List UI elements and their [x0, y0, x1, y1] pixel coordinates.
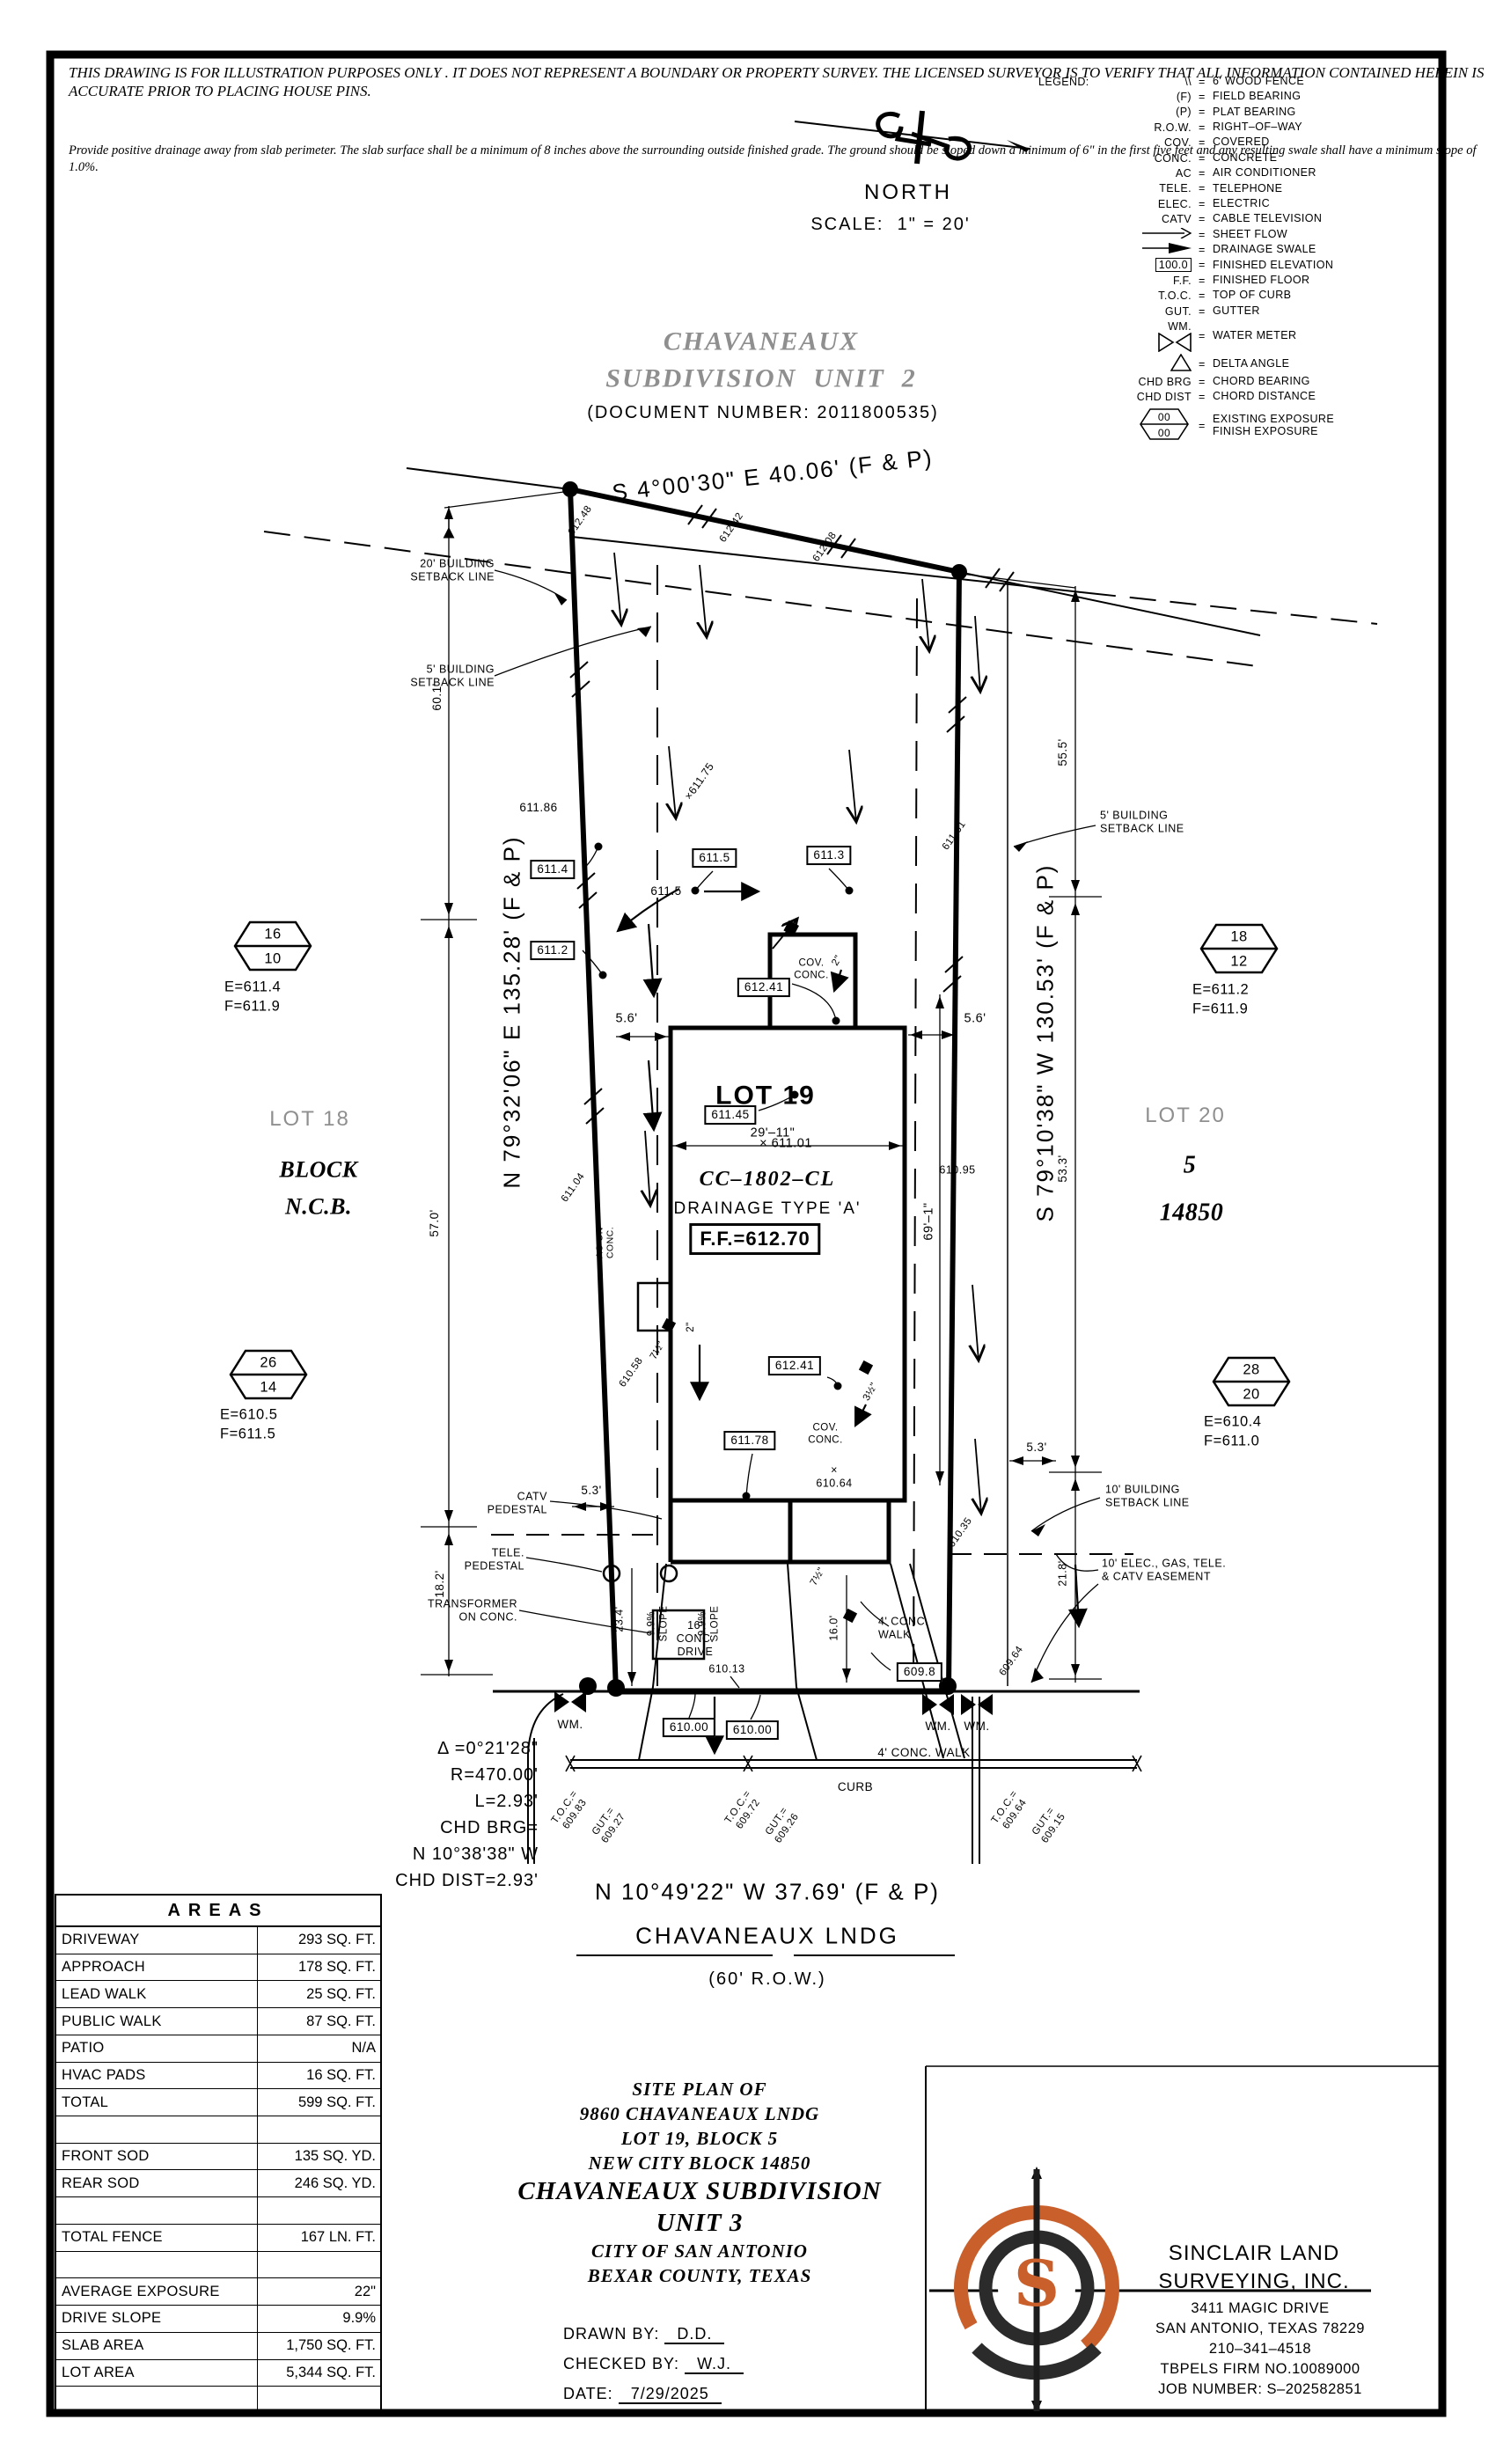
- hex-rt-finish: F=611.9: [1192, 1001, 1248, 1017]
- legend-row: WM.=WATER METER: [1107, 319, 1424, 354]
- elev-box-611-3: 611.3: [806, 846, 851, 865]
- street-name: CHAVANEAUX LNDG: [635, 1923, 899, 1950]
- legend-row: TELE.=TELEPHONE: [1107, 181, 1424, 196]
- dim-18-2: 18.2': [433, 1570, 447, 1597]
- table-row: REAR SOD246 SQ. YD.: [56, 2170, 380, 2197]
- setback-5-left-label: 5' BUILDING SETBACK LINE: [410, 663, 495, 689]
- elev-box-610-00-a: 610.00: [663, 1718, 715, 1737]
- table-row: DRIVEWAY293 SQ. FT.: [56, 1927, 380, 1954]
- svg-text:00: 00: [1158, 427, 1170, 439]
- legend-row: R.O.W.=RIGHT–OF–WAY: [1107, 120, 1424, 135]
- table-row: [56, 2252, 380, 2279]
- legend-row: =DRAINAGE SWALE: [1107, 242, 1424, 257]
- adjacent-subdivision-title2: SUBDIVISION UNIT 2: [605, 363, 916, 393]
- legend-row: CHD BRG=CHORD BEARING: [1107, 374, 1424, 389]
- legend-row: CONC.=CONCRETE: [1107, 150, 1424, 165]
- elev-box-611-45: 611.45: [704, 1105, 756, 1125]
- wm-label-right2: WM.: [964, 1720, 989, 1734]
- legend-row: CHD DIST=CHORD DISTANCE: [1107, 390, 1424, 405]
- dim-21-8: 21.8': [1057, 1560, 1070, 1586]
- spot-610-95: 610.95: [939, 1164, 975, 1177]
- bearing-left: N 79°32'06" E 135.28' (F & P): [499, 835, 526, 1188]
- spot-610-13: 610.13: [708, 1663, 744, 1676]
- hex-rt-existing: E=611.2: [1192, 981, 1249, 998]
- firm-address: 3411 MAGIC DRIVE SAN ANTONIO, TEXAS 7822…: [1155, 2299, 1365, 2400]
- conc-walk-street-label: 4' CONC. WALK: [877, 1746, 970, 1760]
- legend-row: T.O.C.=TOP OF CURB: [1107, 288, 1424, 303]
- table-row: TOTAL FENCE167 LN. FT.: [56, 2225, 380, 2252]
- easement-label: 10' ELEC., GAS, TELE. & CATV EASEMENT: [1102, 1557, 1226, 1583]
- hex-lm-top: 26: [260, 1354, 276, 1371]
- table-row: HVAC PADS16 SQ. FT.: [56, 2063, 380, 2090]
- logo-s-letter: S: [1014, 2246, 1060, 2321]
- hex-lt-top: 16: [264, 926, 281, 942]
- legend-row: \\=6' WOOD FENCE: [1107, 74, 1424, 89]
- lot18-label: LOT 18: [269, 1107, 350, 1132]
- table-row: SLAB AREA1,750 SQ. FT.: [56, 2333, 380, 2360]
- ncb-label: N.C.B.: [285, 1194, 352, 1221]
- hex-lt-finish: F=611.9: [224, 998, 280, 1015]
- title-block-fields: DRAWN BY: D.D. CHECKED BY: W.J. DATE: 7/…: [563, 2319, 744, 2409]
- table-row: PUBLIC WALK87 SQ. FT.: [56, 2008, 380, 2035]
- elev-box-611-4: 611.4: [530, 860, 575, 879]
- sheet-flow-arrow-icon: [1107, 228, 1199, 241]
- dim-5-6-right: 5.6': [964, 1011, 986, 1026]
- dim-5-3-left: 5.3': [581, 1484, 601, 1498]
- dim-16-0: 16.0': [828, 1615, 841, 1640]
- hex-lm-finish: F=611.5: [220, 1426, 275, 1442]
- elev-box-610-00-b: 610.00: [726, 1720, 779, 1740]
- hex-rm-finish: F=611.0: [1204, 1433, 1259, 1449]
- finished-elevation-box-icon: 100.0: [1155, 258, 1192, 272]
- slope-label-1: 9.9% SLOPE: [646, 1606, 670, 1642]
- spot-611-86: 611.86: [519, 801, 557, 815]
- wm-label-left: WM.: [557, 1718, 583, 1732]
- hex-rt-bottom: 12: [1230, 953, 1247, 970]
- dim-23-4: 23.4': [613, 1606, 627, 1632]
- transformer-label: TRANSFORMER ON CONC.: [428, 1597, 517, 1624]
- document-number: (DOCUMENT NUMBER: 2011800535): [587, 403, 939, 424]
- dim-29-11: 29'–11": [751, 1126, 796, 1140]
- setback-5-right-label: 5' BUILDING SETBACK LINE: [1100, 809, 1184, 835]
- dim-69-1: 69'–1": [921, 1202, 936, 1240]
- wood-fence-icon: \\: [1107, 76, 1199, 88]
- legend-row: CATV=CABLE TELEVISION: [1107, 212, 1424, 227]
- hatch-ticks: [570, 505, 1014, 1124]
- table-row: PATION/A: [56, 2035, 380, 2063]
- wm-label-right1: WM.: [925, 1720, 950, 1734]
- elev-box-612-41-mid: 612.41: [768, 1356, 821, 1375]
- drainage-swale-arrow-icon: [1107, 243, 1199, 256]
- exposure-hexagon-icon: 0000: [1107, 405, 1199, 446]
- table-row: AVERAGE EXPOSURE22": [56, 2278, 380, 2306]
- finished-floor-value: F.F.=612.70: [689, 1223, 820, 1255]
- elev-box-611-5: 611.5: [692, 848, 737, 868]
- bearing-street: N 10°49'22" W 37.69' (F & P): [595, 1879, 940, 1906]
- dim-5-3-right: 5.3': [1026, 1441, 1046, 1455]
- table-row: [56, 2116, 380, 2144]
- cov-conc-lower-label: COV. CONC.: [808, 1422, 843, 1446]
- lot20-label: LOT 20: [1145, 1104, 1226, 1128]
- survey-sheet: THIS DRAWING IS FOR ILLUSTRATION PURPOSE…: [0, 0, 1496, 2464]
- legend-row: 0000=EXISTING EXPOSURE FINISH EXPOSURE: [1107, 405, 1424, 446]
- ac-on-conc-label: AC ON CONC.: [595, 1227, 617, 1258]
- table-row: TOTAL599 SQ. FT.: [56, 2089, 380, 2116]
- tele-pedestal-label: TELE. PEDESTAL: [465, 1546, 524, 1573]
- bearing-right: S 79°10'38" W 130.53' (F & P): [1032, 864, 1060, 1222]
- table-row: DRIVE SLOPE9.9%: [56, 2306, 380, 2333]
- dim-60-1: 60.1': [430, 683, 444, 710]
- elev-box-609-8: 609.8: [897, 1662, 942, 1682]
- dim-5-6-left: 5.6': [616, 1011, 638, 1026]
- dim-53-3: 53.3': [1056, 1155, 1070, 1182]
- hex-rm-top: 28: [1243, 1361, 1259, 1378]
- block5-label: 5: [1184, 1150, 1197, 1179]
- hex-lt-existing: E=611.4: [224, 979, 281, 995]
- lead-walk-label: 4' CONC. WALK: [878, 1615, 928, 1641]
- hex-rm-bottom: 20: [1243, 1386, 1259, 1403]
- lot19-drainage-type: DRAINAGE TYPE 'A': [673, 1199, 861, 1219]
- setback-20-label: 20' BUILDING SETBACK LINE: [410, 557, 495, 583]
- block-label: BLOCK: [279, 1157, 357, 1184]
- legend-row: GUT.=GUTTER: [1107, 304, 1424, 319]
- scale-label: SCALE: 1" = 20': [810, 215, 970, 236]
- title-block: SITE PLAN OF 9860 CHAVANEAUX LNDG LOT 19…: [517, 2077, 881, 2288]
- legend-title: LEGEND:: [1038, 74, 1089, 89]
- catv-pedestal-label: CATV PEDESTAL: [488, 1490, 547, 1516]
- cov-conc-top-label: COV. CONC.: [794, 957, 829, 981]
- table-row: LOT AREA5,344 SQ. FT.: [56, 2360, 380, 2387]
- elev-box-612-41-top: 612.41: [737, 978, 790, 997]
- table-row: LEAD WALK25 SQ. FT.: [56, 1981, 380, 2008]
- legend-row: =SHEET FLOW: [1107, 227, 1424, 242]
- table-row: [56, 2387, 380, 2413]
- hex-lm-existing: E=610.5: [220, 1406, 277, 1423]
- delta-triangle-icon: [1107, 354, 1199, 374]
- spot-610-64: × 610.64: [816, 1463, 852, 1490]
- areas-table-title: AREAS: [56, 1896, 380, 1927]
- elev-box-611-2: 611.2: [530, 941, 575, 960]
- setback-10-label: 10' BUILDING SETBACK LINE: [1105, 1483, 1190, 1509]
- legend-row: (P)=PLAT BEARING: [1107, 105, 1424, 120]
- firm-name: SINCLAIR LAND SURVEYING, INC.: [1158, 2240, 1349, 2296]
- spot-611-5: 611.5: [650, 884, 681, 898]
- legend-row: =DELTA ANGLE: [1107, 354, 1424, 374]
- elev-box-611-78: 611.78: [723, 1431, 775, 1450]
- slope-label-2: 9.9% SLOPE: [697, 1606, 721, 1642]
- curb-label: CURB: [838, 1780, 873, 1794]
- table-row: [56, 2197, 380, 2225]
- legend-row: COV.=COVERED: [1107, 136, 1424, 150]
- checked-by-value: W.J.: [685, 2355, 744, 2374]
- curve-data: Δ =0°21'28" R=470.00' L=2.93' CHD BRG= N…: [395, 1735, 539, 1894]
- date-value: 7/29/2025: [619, 2385, 722, 2404]
- dim-2-mid: 2": [686, 1322, 698, 1331]
- table-row: FRONT SOD135 SQ. YD.: [56, 2144, 380, 2171]
- legend-row: F.F.=FINISHED FLOOR: [1107, 273, 1424, 288]
- ncb-number-label: 14850: [1160, 1198, 1224, 1227]
- dim-55-5: 55.5': [1056, 738, 1070, 766]
- hex-rt-top: 18: [1230, 928, 1247, 945]
- north-label: NORTH: [864, 180, 952, 205]
- legend-row: AC=AIR CONDITIONER: [1107, 165, 1424, 180]
- hex-rm-existing: E=610.4: [1204, 1413, 1261, 1430]
- legend-row: (F)=FIELD BEARING: [1107, 89, 1424, 104]
- dim-57-0: 57.0': [428, 1209, 442, 1236]
- adjacent-subdivision-title: CHAVANEAUX: [664, 326, 859, 356]
- lot19-plan-code: CC–1802–CL: [700, 1167, 836, 1192]
- water-meter-icon: [1158, 333, 1192, 352]
- drawn-by-value: D.D.: [664, 2325, 724, 2344]
- table-row: APPROACH178 SQ. FT.: [56, 1954, 380, 1982]
- legend: LEGEND: \\=6' WOOD FENCE (F)=FIELD BEARI…: [1107, 74, 1424, 446]
- legend-row: ELEC.=ELECTRIC: [1107, 196, 1424, 211]
- hex-lt-bottom: 10: [264, 950, 281, 967]
- areas-table: AREAS DRIVEWAY293 SQ. FT. APPROACH178 SQ…: [55, 1894, 382, 2415]
- legend-row: 100.0=FINISHED ELEVATION: [1107, 258, 1424, 273]
- svg-text:00: 00: [1158, 411, 1170, 423]
- street-row: (60' R.O.W.): [708, 1969, 825, 1991]
- hex-lm-bottom: 14: [260, 1379, 276, 1396]
